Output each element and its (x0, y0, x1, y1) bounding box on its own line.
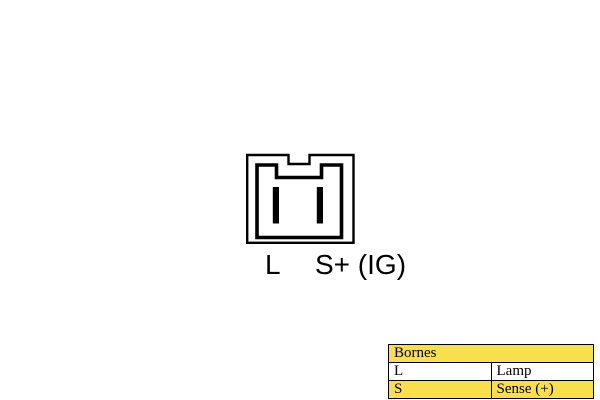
legend-row-s: S Sense (+) (389, 381, 594, 399)
connector-outer-outline (247, 155, 353, 243)
pin-label-l: L (265, 249, 281, 281)
legend-header-row: Bornes (389, 345, 594, 363)
legend-header-cell: Bornes (389, 345, 594, 363)
pin-right (317, 187, 323, 224)
pin-left (273, 187, 279, 224)
legend-label-cell: Sense (+) (491, 381, 594, 399)
legend-table: Bornes L Lamp S Sense (+) (388, 344, 594, 399)
legend-label-cell: Lamp (491, 363, 594, 381)
connector-diagram (240, 148, 365, 253)
legend-code-cell: S (389, 381, 492, 399)
legend-code-cell: L (389, 363, 492, 381)
connector-inner-outline (257, 165, 342, 238)
page-canvas: { "diagram": { "name": "two-pin-connecto… (0, 0, 600, 400)
pin-label-s-ig: S+ (IG) (315, 249, 406, 281)
legend-row-l: L Lamp (389, 363, 594, 381)
